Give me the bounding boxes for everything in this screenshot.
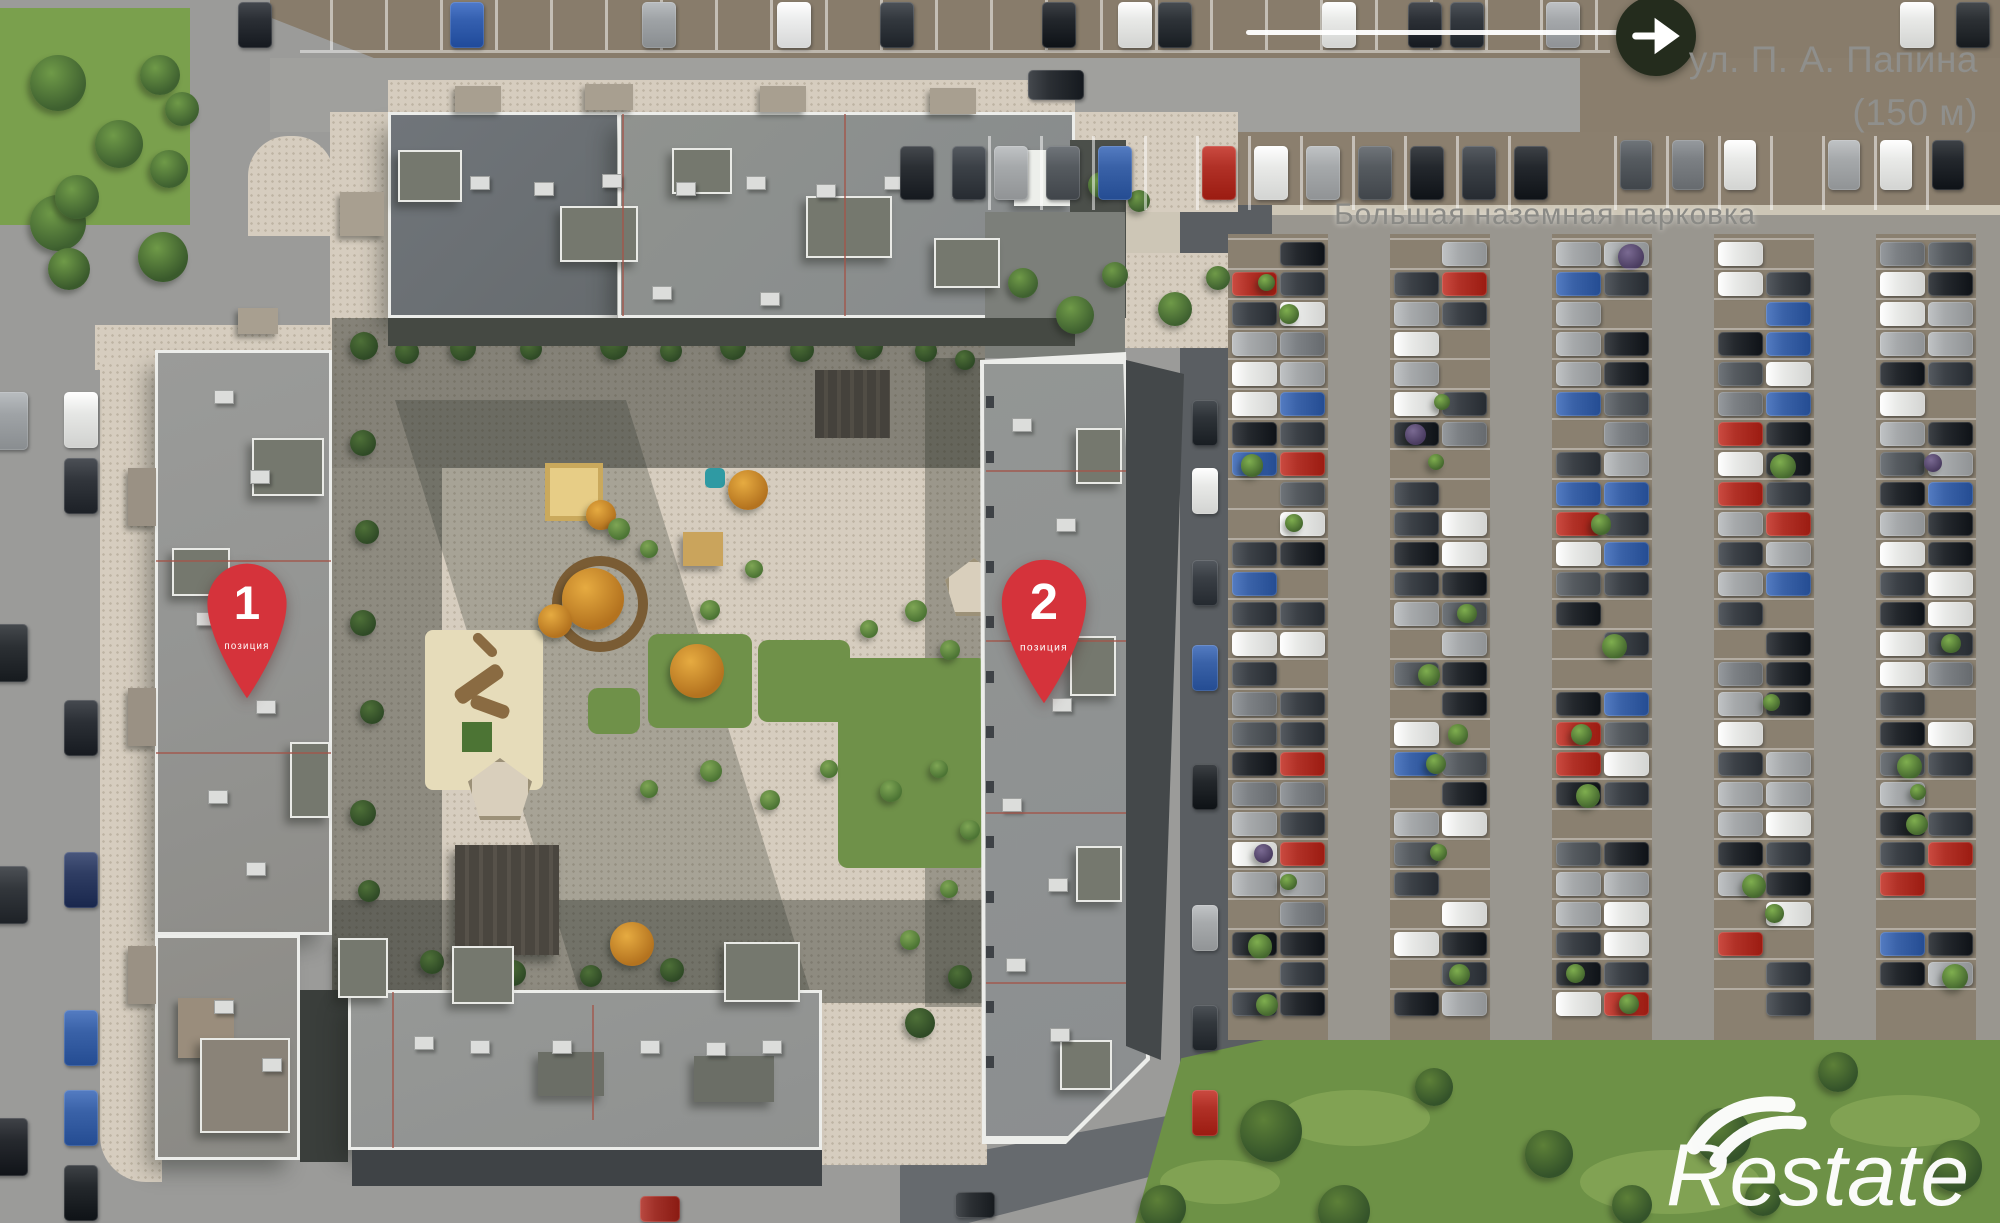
- car: [1604, 902, 1649, 926]
- car: [1232, 392, 1277, 416]
- car: [1928, 662, 1973, 686]
- roof-joint: [592, 1005, 594, 1120]
- tree: [30, 55, 86, 111]
- tree: [1618, 244, 1644, 270]
- tree: [420, 950, 444, 974]
- car: [1556, 452, 1601, 476]
- parking-stall-line: [1390, 298, 1490, 300]
- parking-stall-line: [1390, 328, 1490, 330]
- balcony: [986, 671, 994, 683]
- parking-stall-line: [1228, 238, 1328, 240]
- car: [1604, 842, 1649, 866]
- car: [1556, 602, 1601, 626]
- parking-space-line: [1595, 0, 1598, 50]
- car: [1442, 902, 1487, 926]
- car: [1280, 992, 1325, 1016]
- balcony: [986, 451, 994, 463]
- parking-stall-line: [1390, 538, 1490, 540]
- car: [1766, 302, 1811, 326]
- tree: [538, 604, 572, 638]
- tree: [640, 540, 658, 558]
- parking-space-line: [825, 0, 828, 50]
- parking-space-line: [1100, 0, 1103, 50]
- car: [1394, 602, 1439, 626]
- car: [1254, 146, 1288, 200]
- car: [1280, 542, 1325, 566]
- street-label: ул. П. А. Папина (150 м): [1689, 34, 1978, 139]
- car: [1280, 932, 1325, 956]
- rooftop-ac-unit: [640, 1040, 660, 1054]
- car: [1442, 272, 1487, 296]
- tree: [1102, 262, 1128, 288]
- position-pin-2[interactable]: 2 позиция: [997, 556, 1091, 706]
- parking-stall-line: [1876, 988, 1976, 990]
- balcony: [986, 616, 994, 628]
- parking-stall-line: [1876, 928, 1976, 930]
- rooftop-ac-unit: [652, 286, 672, 300]
- car: [1202, 146, 1236, 200]
- tree: [670, 644, 724, 698]
- car: [1928, 602, 1973, 626]
- car: [1718, 482, 1763, 506]
- tree: [930, 760, 948, 778]
- car: [1280, 782, 1325, 806]
- car: [1280, 902, 1325, 926]
- entrance-canopy: [340, 192, 384, 236]
- parking-stall-line: [1714, 448, 1814, 450]
- parking-stall-line: [1228, 838, 1328, 840]
- rooftop-ac-unit: [414, 1036, 434, 1050]
- parking-stall-line: [1714, 778, 1814, 780]
- car: [0, 624, 28, 682]
- tree: [745, 560, 763, 578]
- parking-stall-line: [1714, 388, 1814, 390]
- tree: [1415, 1068, 1453, 1106]
- rooftop-ac-unit: [214, 1000, 234, 1014]
- car: [1442, 692, 1487, 716]
- hedge-square: [462, 722, 492, 752]
- balcony: [986, 891, 994, 903]
- car: [1280, 362, 1325, 386]
- tree: [48, 248, 90, 290]
- car: [1718, 392, 1763, 416]
- watermark-text: Restate: [1666, 1125, 1969, 1221]
- car: [1766, 392, 1811, 416]
- balcony: [986, 396, 994, 408]
- rooftop-ac-unit: [256, 700, 276, 714]
- tree: [358, 880, 380, 902]
- car: [1718, 332, 1763, 356]
- rooftop-ac-unit: [470, 176, 490, 190]
- tree: [355, 520, 379, 544]
- car: [1766, 422, 1811, 446]
- car: [1394, 722, 1439, 746]
- pin-2-label: позиция: [1020, 643, 1068, 654]
- building-top-facade-south: [388, 318, 1075, 346]
- car: [1394, 872, 1439, 896]
- car: [952, 146, 986, 200]
- tree: [1240, 1100, 1302, 1162]
- parking-stall-line: [1714, 988, 1814, 990]
- rooftop-ac-unit: [762, 1040, 782, 1054]
- courtyard-lawn: [758, 640, 850, 722]
- parking-stall-line: [1390, 868, 1490, 870]
- car: [1556, 362, 1601, 386]
- car: [1280, 392, 1325, 416]
- car: [1604, 692, 1649, 716]
- car: [1672, 140, 1704, 190]
- car: [1192, 468, 1218, 514]
- tree: [55, 175, 99, 219]
- rooftop-ac-unit: [1002, 798, 1022, 812]
- parking-stall-line: [1552, 988, 1652, 990]
- building-bottom-facade-south: [352, 1150, 822, 1186]
- roof-structure: [1060, 1040, 1112, 1090]
- roof-structure: [252, 438, 324, 496]
- car: [1718, 692, 1763, 716]
- car: [1604, 542, 1649, 566]
- car: [955, 1192, 995, 1218]
- car: [1928, 482, 1973, 506]
- parking-stall-line: [1876, 718, 1976, 720]
- car: [1280, 242, 1325, 266]
- balcony: [986, 726, 994, 738]
- tree: [820, 760, 838, 778]
- car: [1928, 272, 1973, 296]
- tree: [1448, 724, 1469, 745]
- car: [1880, 272, 1925, 296]
- tree: [165, 92, 199, 126]
- parking-space-line: [1540, 0, 1543, 50]
- parking-stall-line: [1552, 448, 1652, 450]
- tree: [580, 965, 602, 987]
- parking-stall-line: [1228, 868, 1328, 870]
- car: [1766, 482, 1811, 506]
- car: [1232, 752, 1277, 776]
- parking-stall-line: [1552, 928, 1652, 930]
- car: [1280, 332, 1325, 356]
- tree: [1765, 904, 1784, 923]
- parking-stall-line: [1552, 838, 1652, 840]
- car: [1556, 572, 1601, 596]
- rooftop-ac-unit: [746, 176, 766, 190]
- parking-stall-line: [1228, 928, 1328, 930]
- parking-stall-line: [1714, 418, 1814, 420]
- car: [1280, 962, 1325, 986]
- tree: [1619, 994, 1639, 1014]
- tree: [955, 350, 975, 370]
- car: [1718, 452, 1763, 476]
- tree: [1008, 268, 1038, 298]
- car: [640, 1196, 680, 1222]
- balcony: [986, 946, 994, 958]
- car: [1718, 752, 1763, 776]
- building-1-wing-gap-facade: [300, 990, 348, 1162]
- parking-stall-line: [1552, 508, 1652, 510]
- car: [1442, 752, 1487, 776]
- parking-stall-line: [1876, 358, 1976, 360]
- car: [1604, 422, 1649, 446]
- car: [1766, 362, 1811, 386]
- rooftop-ac-unit: [1006, 958, 1026, 972]
- parking-stall-line: [1390, 748, 1490, 750]
- car: [1442, 992, 1487, 1016]
- car: [1604, 332, 1649, 356]
- parking-stall-line: [1228, 538, 1328, 540]
- car: [1604, 392, 1649, 416]
- parking-stall-line: [1714, 478, 1814, 480]
- car: [1442, 932, 1487, 956]
- pin-1-number: 1: [234, 577, 260, 630]
- car: [1928, 422, 1973, 446]
- car: [1280, 722, 1325, 746]
- car: [1442, 512, 1487, 536]
- car: [1394, 302, 1439, 326]
- roof-joint: [986, 470, 1136, 472]
- parking-stall-line: [1390, 658, 1490, 660]
- tree: [140, 55, 180, 95]
- car: [1718, 602, 1763, 626]
- rooftop-ac-unit: [1050, 1028, 1070, 1042]
- rooftop-ac-unit: [1012, 418, 1032, 432]
- rooftop-ac-unit: [470, 1040, 490, 1054]
- car: [1306, 146, 1340, 200]
- watermark: Restate: [1660, 1095, 2000, 1221]
- car: [1410, 146, 1444, 200]
- parking-stall-line: [1876, 508, 1976, 510]
- roof-structure: [452, 946, 514, 1004]
- tree: [1206, 266, 1230, 290]
- roof-structure: [694, 1056, 774, 1102]
- roof-structure: [1076, 428, 1122, 484]
- parking-stall-line: [1228, 988, 1328, 990]
- car: [1394, 392, 1439, 416]
- courtyard-lawn: [588, 688, 640, 734]
- parking-space-line: [1375, 0, 1378, 50]
- car: [0, 1118, 28, 1176]
- parking-space-line: [770, 0, 773, 50]
- parking-space-line: [1210, 0, 1213, 50]
- tree: [350, 610, 376, 636]
- parking-stall-line: [1876, 598, 1976, 600]
- parking-stall-line: [1876, 868, 1976, 870]
- car: [1880, 392, 1925, 416]
- parking-stall-line: [1228, 808, 1328, 810]
- parking-stall-line: [1876, 838, 1976, 840]
- car: [1192, 764, 1218, 810]
- car: [1928, 752, 1973, 776]
- parking-stall-line: [1714, 838, 1814, 840]
- car: [64, 852, 98, 908]
- car: [1880, 962, 1925, 986]
- tree: [905, 600, 927, 622]
- parking-stall-line: [1714, 868, 1814, 870]
- car: [1394, 332, 1439, 356]
- parking-stall-line: [1714, 958, 1814, 960]
- car: [1280, 602, 1325, 626]
- rooftop-ac-unit: [214, 390, 234, 404]
- rooftop-ac-unit: [706, 1042, 726, 1056]
- car: [1556, 692, 1601, 716]
- site-plan-map: ул. П. А. Папина (150 м) Большая наземна…: [0, 0, 2000, 1223]
- parking-stall-line: [1552, 568, 1652, 570]
- pergola: [455, 845, 559, 955]
- parking-stall-line: [1552, 598, 1652, 600]
- entrance-canopy: [760, 86, 806, 112]
- car: [1880, 602, 1925, 626]
- car: [1232, 572, 1277, 596]
- car: [1442, 782, 1487, 806]
- parking-stall-line: [1390, 778, 1490, 780]
- car: [1394, 992, 1439, 1016]
- car: [1880, 422, 1925, 446]
- parking-space-line: [440, 0, 443, 50]
- tree: [1941, 634, 1960, 653]
- balcony: [986, 836, 994, 848]
- car: [1394, 542, 1439, 566]
- car: [0, 392, 28, 450]
- parking-stall-line: [1390, 718, 1490, 720]
- car: [880, 2, 914, 48]
- parking-stall-line: [1876, 658, 1976, 660]
- car: [1192, 560, 1218, 606]
- tree: [1280, 874, 1296, 890]
- tree: [1248, 934, 1273, 959]
- car: [1118, 2, 1152, 48]
- entrance-canopy: [585, 84, 633, 110]
- parking-stall-line: [1552, 298, 1652, 300]
- building-1-wing-structure: [200, 1038, 290, 1133]
- tree: [95, 120, 143, 168]
- roof-structure: [398, 150, 462, 202]
- tree: [700, 600, 720, 620]
- parking-stall-line: [1876, 958, 1976, 960]
- car: [1766, 842, 1811, 866]
- parking-space-line: [1196, 136, 1199, 210]
- tree: [640, 780, 658, 798]
- tree: [948, 965, 972, 989]
- rooftop-ac-unit: [552, 1040, 572, 1054]
- tree: [1906, 814, 1927, 835]
- car: [1604, 962, 1649, 986]
- position-pin-1[interactable]: 1 позиция: [203, 560, 291, 701]
- car: [1232, 872, 1277, 896]
- car: [1620, 140, 1652, 190]
- car: [1718, 542, 1763, 566]
- car: [1928, 332, 1973, 356]
- parking-stall-line: [1228, 568, 1328, 570]
- parking-stall-line: [1552, 478, 1652, 480]
- tree: [1942, 964, 1968, 990]
- car: [1232, 332, 1277, 356]
- car: [238, 2, 272, 48]
- car: [1232, 812, 1277, 836]
- tree: [360, 700, 384, 724]
- tree: [1818, 1052, 1858, 1092]
- entrance-canopy: [128, 468, 156, 526]
- car: [1766, 752, 1811, 776]
- parking-stall-line: [1552, 958, 1652, 960]
- car: [1280, 692, 1325, 716]
- parking-stall-line: [1876, 568, 1976, 570]
- tree: [1405, 424, 1426, 445]
- parking-stall-line: [1876, 478, 1976, 480]
- parking-space-line: [1040, 136, 1043, 210]
- car: [1442, 812, 1487, 836]
- car: [1450, 2, 1484, 48]
- parking-stall-line: [1714, 538, 1814, 540]
- car: [1280, 812, 1325, 836]
- rooftop-ac-unit: [760, 292, 780, 306]
- tree: [1525, 1130, 1573, 1178]
- car: [1442, 422, 1487, 446]
- car: [777, 2, 811, 48]
- car: [1232, 782, 1277, 806]
- parking-stall-line: [1228, 268, 1328, 270]
- car: [1928, 242, 1973, 266]
- parking-space-line: [1874, 136, 1877, 210]
- car: [1442, 542, 1487, 566]
- parking-stall-line: [1876, 298, 1976, 300]
- car: [1766, 662, 1811, 686]
- car: [1928, 512, 1973, 536]
- rooftop-ac-unit: [1048, 878, 1068, 892]
- car: [1280, 752, 1325, 776]
- roof-structure: [338, 938, 388, 998]
- parking-stall-line: [1228, 688, 1328, 690]
- rooftop-ac-unit: [602, 174, 622, 188]
- parking-stall-line: [1390, 418, 1490, 420]
- car: [1232, 602, 1277, 626]
- car: [1928, 302, 1973, 326]
- roof-joint: [986, 982, 1142, 984]
- roof-joint: [622, 114, 624, 316]
- car: [1280, 272, 1325, 296]
- car: [1556, 272, 1601, 296]
- car: [1880, 932, 1925, 956]
- car: [1718, 722, 1763, 746]
- street-distance: (150 м): [1689, 87, 1978, 140]
- car: [1442, 662, 1487, 686]
- parking-stall-line: [1390, 628, 1490, 630]
- car: [1766, 572, 1811, 596]
- car: [1604, 362, 1649, 386]
- parking-stall-line: [1552, 718, 1652, 720]
- parking-stall-line: [1390, 568, 1490, 570]
- parking-space-line: [1092, 136, 1095, 210]
- car: [1394, 362, 1439, 386]
- parking-stall-line: [1876, 778, 1976, 780]
- parking-stall-line: [1552, 538, 1652, 540]
- car: [1928, 812, 1973, 836]
- car: [1880, 242, 1925, 266]
- parking-stall-line: [1876, 748, 1976, 750]
- tree: [1158, 292, 1192, 326]
- parking-space-line: [990, 0, 993, 50]
- parking-space-line: [988, 136, 991, 210]
- parking-stall-line: [1390, 388, 1490, 390]
- entrance-canopy: [128, 946, 156, 1004]
- parking-stall-line: [1390, 268, 1490, 270]
- parking-stall-line: [1714, 628, 1814, 630]
- car: [1880, 332, 1925, 356]
- tree: [940, 640, 960, 660]
- car: [1928, 932, 1973, 956]
- rooftop-ac-unit: [816, 184, 836, 198]
- parking-stall-line: [1714, 298, 1814, 300]
- car: [1718, 662, 1763, 686]
- parking-stall-line: [1714, 898, 1814, 900]
